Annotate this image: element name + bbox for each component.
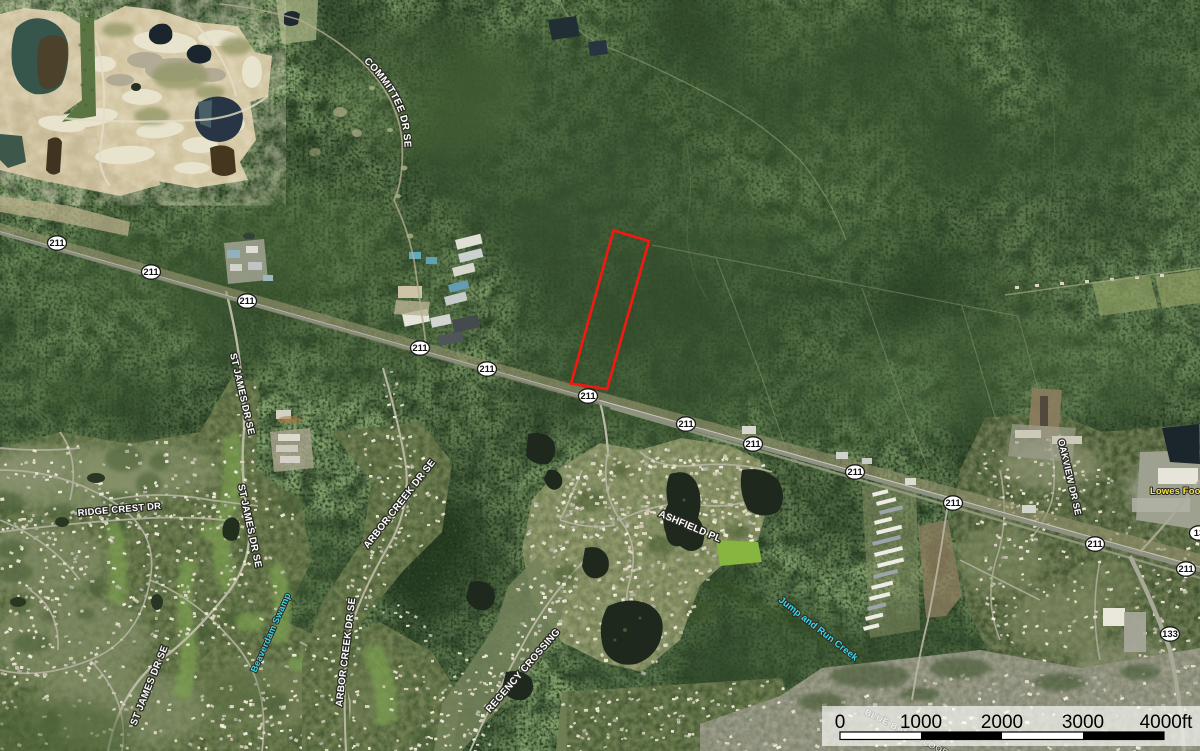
svg-text:211: 211 bbox=[847, 467, 863, 478]
svg-text:211: 211 bbox=[1087, 539, 1103, 550]
svg-text:2000: 2000 bbox=[981, 712, 1023, 733]
svg-text:13: 13 bbox=[1194, 528, 1200, 539]
svg-text:0: 0 bbox=[835, 712, 846, 733]
svg-text:1000: 1000 bbox=[900, 712, 942, 733]
svg-text:4000ft: 4000ft bbox=[1140, 712, 1194, 733]
svg-text:Lowes Foods: Lowes Foods bbox=[1150, 486, 1200, 497]
svg-text:211: 211 bbox=[945, 498, 961, 509]
svg-text:211: 211 bbox=[49, 238, 65, 249]
svg-text:211: 211 bbox=[239, 296, 255, 307]
svg-text:211: 211 bbox=[580, 391, 596, 402]
svg-text:211: 211 bbox=[143, 267, 159, 278]
svg-text:211: 211 bbox=[1178, 564, 1194, 575]
svg-text:211: 211 bbox=[678, 419, 694, 430]
svg-text:3000: 3000 bbox=[1062, 712, 1104, 733]
svg-text:211: 211 bbox=[745, 439, 761, 450]
svg-text:211: 211 bbox=[412, 343, 428, 354]
svg-text:211: 211 bbox=[479, 364, 495, 375]
svg-text:133: 133 bbox=[1162, 629, 1178, 640]
